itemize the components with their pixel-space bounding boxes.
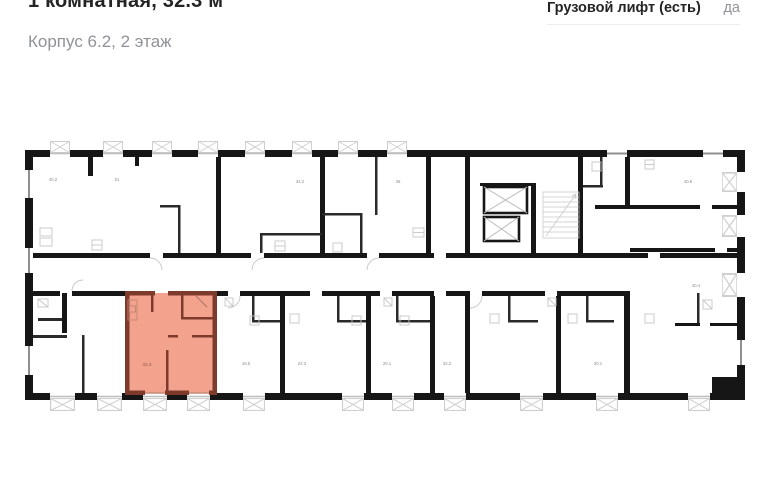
room-area-label: 36 [396, 179, 401, 184]
room-area-label: 22.3 [298, 361, 307, 366]
right-wing-walls [583, 157, 737, 393]
highlighted-apartment[interactable] [125, 291, 217, 395]
room-area-label: 40.2 [49, 177, 58, 182]
selected-room-area-label: 32.3 [143, 362, 152, 367]
room-area-label: 32.2 [443, 361, 452, 366]
exterior-wall-right [737, 150, 745, 400]
floor-plan: 40.2 51 34.2 36 40.5 40.4 32.3 19.5 22.3… [0, 0, 770, 500]
room-area-label: 34.2 [296, 179, 305, 184]
staircase-icon [543, 192, 579, 238]
room-area-label: 20.1 [383, 361, 392, 366]
elevator-shaft-icon [484, 217, 519, 241]
lower-apartment-walls [33, 293, 614, 393]
balcony-icons-bottom [51, 399, 710, 411]
exterior-wall-left [25, 150, 33, 400]
exterior-wall-top [25, 150, 745, 157]
room-area-label: 51 [115, 177, 120, 182]
room-area-label: 19.5 [242, 361, 251, 366]
room-area-label: 40.5 [684, 179, 693, 184]
corridor-wall-lower [33, 291, 627, 296]
elevator-shaft-icon [484, 187, 527, 213]
room-area-label: 20.1 [594, 361, 603, 366]
upper-apartment-walls [88, 157, 470, 253]
room-area-label: 40.4 [692, 283, 701, 288]
corridor-wall-upper [33, 253, 737, 258]
elevator-core [480, 157, 583, 253]
balcony-icons-right [722, 173, 736, 296]
